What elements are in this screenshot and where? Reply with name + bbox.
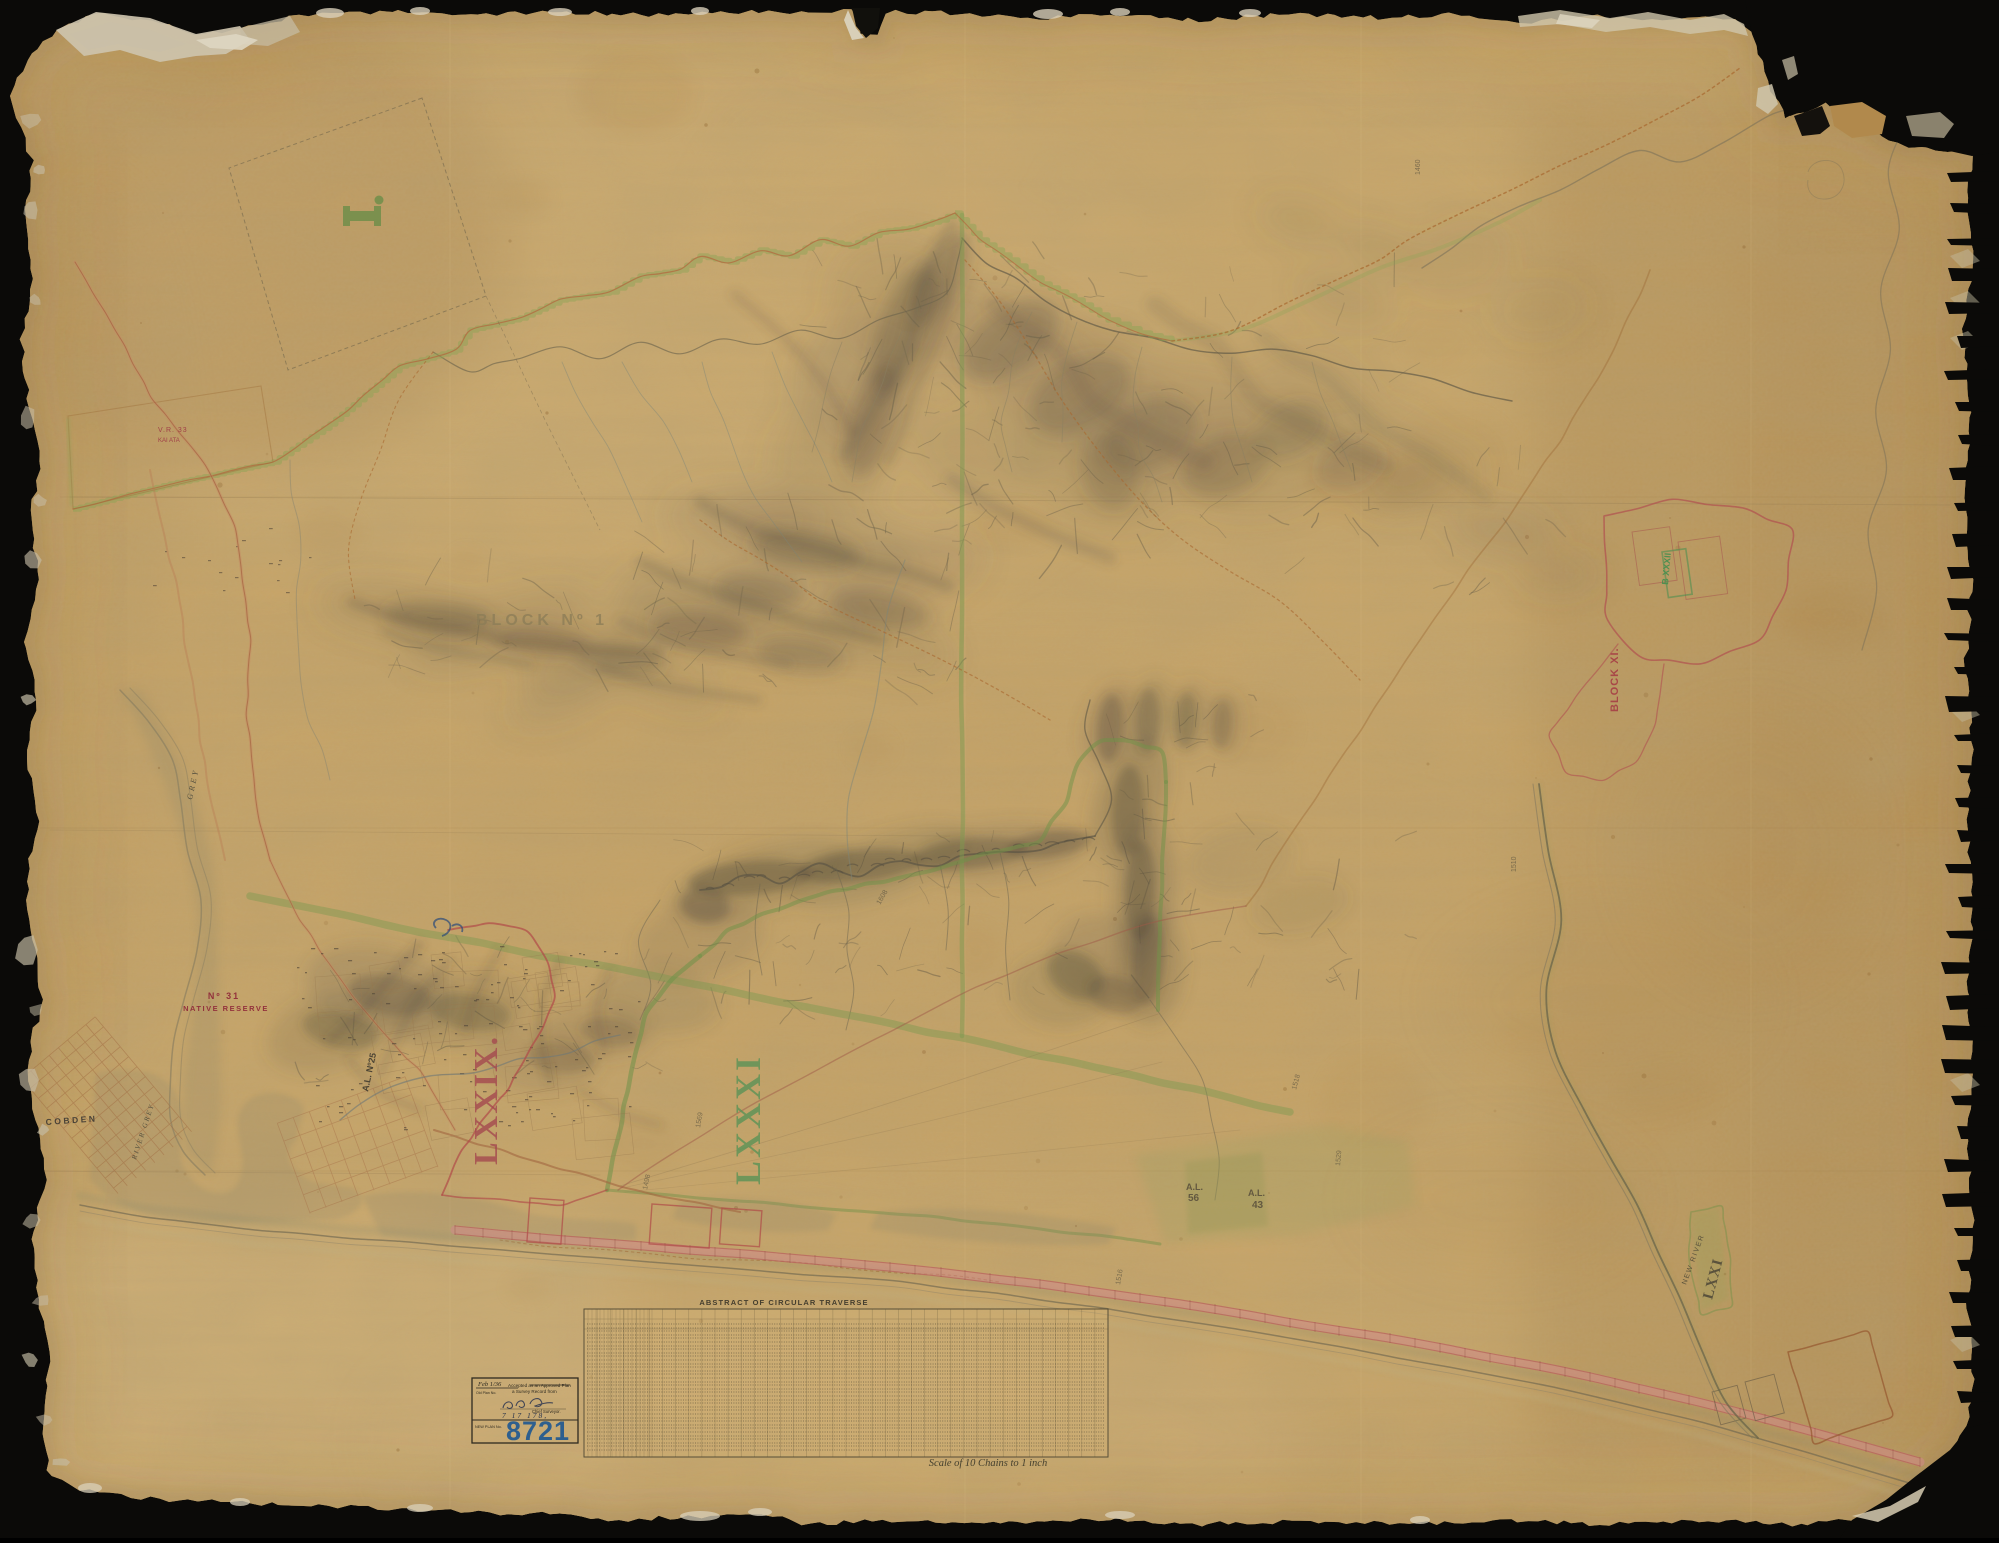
svg-text:BLOCK XI.: BLOCK XI. (1609, 647, 1621, 712)
svg-text:43: 43 (1252, 1200, 1264, 1211)
svg-text:LXXXI: LXXXI (728, 1054, 768, 1185)
svg-text:KAI ATA: KAI ATA (158, 438, 180, 444)
svg-text:a Survey Record from: a Survey Record from (512, 1389, 557, 1394)
svg-text:1529: 1529 (1335, 1150, 1343, 1166)
svg-text:BLOCK Nº 1: BLOCK Nº 1 (476, 612, 608, 629)
svg-text:8721: 8721 (506, 1416, 570, 1446)
svg-text:Scale of 10 Chains to 1 inch: Scale of 10 Chains to 1 inch (929, 1458, 1047, 1469)
svg-text:A.L.: A.L. (1186, 1182, 1203, 1192)
svg-text:1510: 1510 (1511, 856, 1518, 872)
svg-text:ABSTRACT OF CIRCULAR TRAVERSE: ABSTRACT OF CIRCULAR TRAVERSE (699, 1298, 868, 1307)
svg-text:A.L.: A.L. (1248, 1188, 1265, 1198)
svg-text:V.R. 33: V.R. 33 (158, 427, 188, 434)
svg-text:56: 56 (1188, 1193, 1200, 1204)
svg-text:Accepted as an Approved Plan: Accepted as an Approved Plan (508, 1383, 571, 1388)
svg-text:1460: 1460 (1415, 159, 1422, 175)
svg-text:Feb 1/36: Feb 1/36 (477, 1381, 502, 1388)
svg-text:Old Plan No.: Old Plan No. (476, 1391, 496, 1395)
svg-text:NATIVE RESERVE: NATIVE RESERVE (183, 1004, 269, 1013)
svg-text:LXXIX.: LXXIX. (468, 1035, 505, 1165)
svg-text:Nº 31: Nº 31 (208, 991, 240, 1001)
svg-text:NEW PLAN No.: NEW PLAN No. (475, 1425, 502, 1429)
